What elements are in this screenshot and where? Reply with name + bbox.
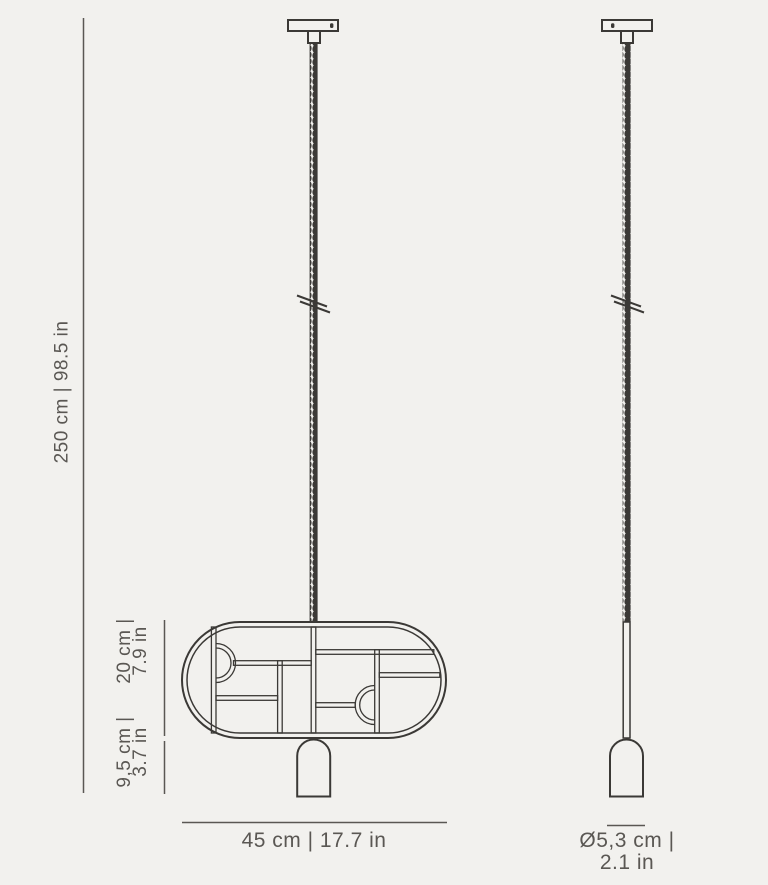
dim-frame-height-in: 7.9 in	[133, 618, 149, 683]
side-ceiling-canopy	[602, 20, 652, 43]
screw-slot-icon	[330, 23, 333, 28]
side-view-drawing	[602, 20, 652, 797]
side-lamp-frame	[623, 622, 630, 738]
dim-frame-height-label: 20 cm | 7.9 in	[117, 618, 149, 683]
front-suspension-cord	[310, 42, 318, 622]
dim-shade-diameter-cm: Ø5,3 cm |	[579, 830, 674, 852]
dim-shade-height-in: 3.7 in	[133, 716, 149, 787]
dim-shade-height-label: 9,5 cm | 3.7 in	[117, 716, 149, 787]
dim-frame-width-label: 45 cm | 17.7 in	[242, 830, 387, 852]
dim-shade-diameter-in: 2.1 in	[579, 852, 674, 874]
front-lamp-frame	[182, 622, 446, 738]
screw-slot-icon	[611, 23, 614, 28]
dim-shade-diameter-label: Ø5,3 cm | 2.1 in	[579, 830, 674, 874]
side-suspension-cord	[623, 42, 631, 622]
front-view-drawing	[182, 20, 446, 797]
dimension-lines	[84, 18, 646, 826]
front-ceiling-canopy	[288, 20, 338, 43]
dimension-diagram: 250 cm | 98.5 in 20 cm | 7.9 in 9,5 cm |…	[0, 0, 768, 885]
dim-drop-label: 250 cm | 98.5 in	[53, 321, 72, 464]
side-lamp-shade	[610, 740, 643, 797]
frame-grid-pattern	[211, 627, 439, 733]
front-lamp-shade	[297, 740, 330, 797]
